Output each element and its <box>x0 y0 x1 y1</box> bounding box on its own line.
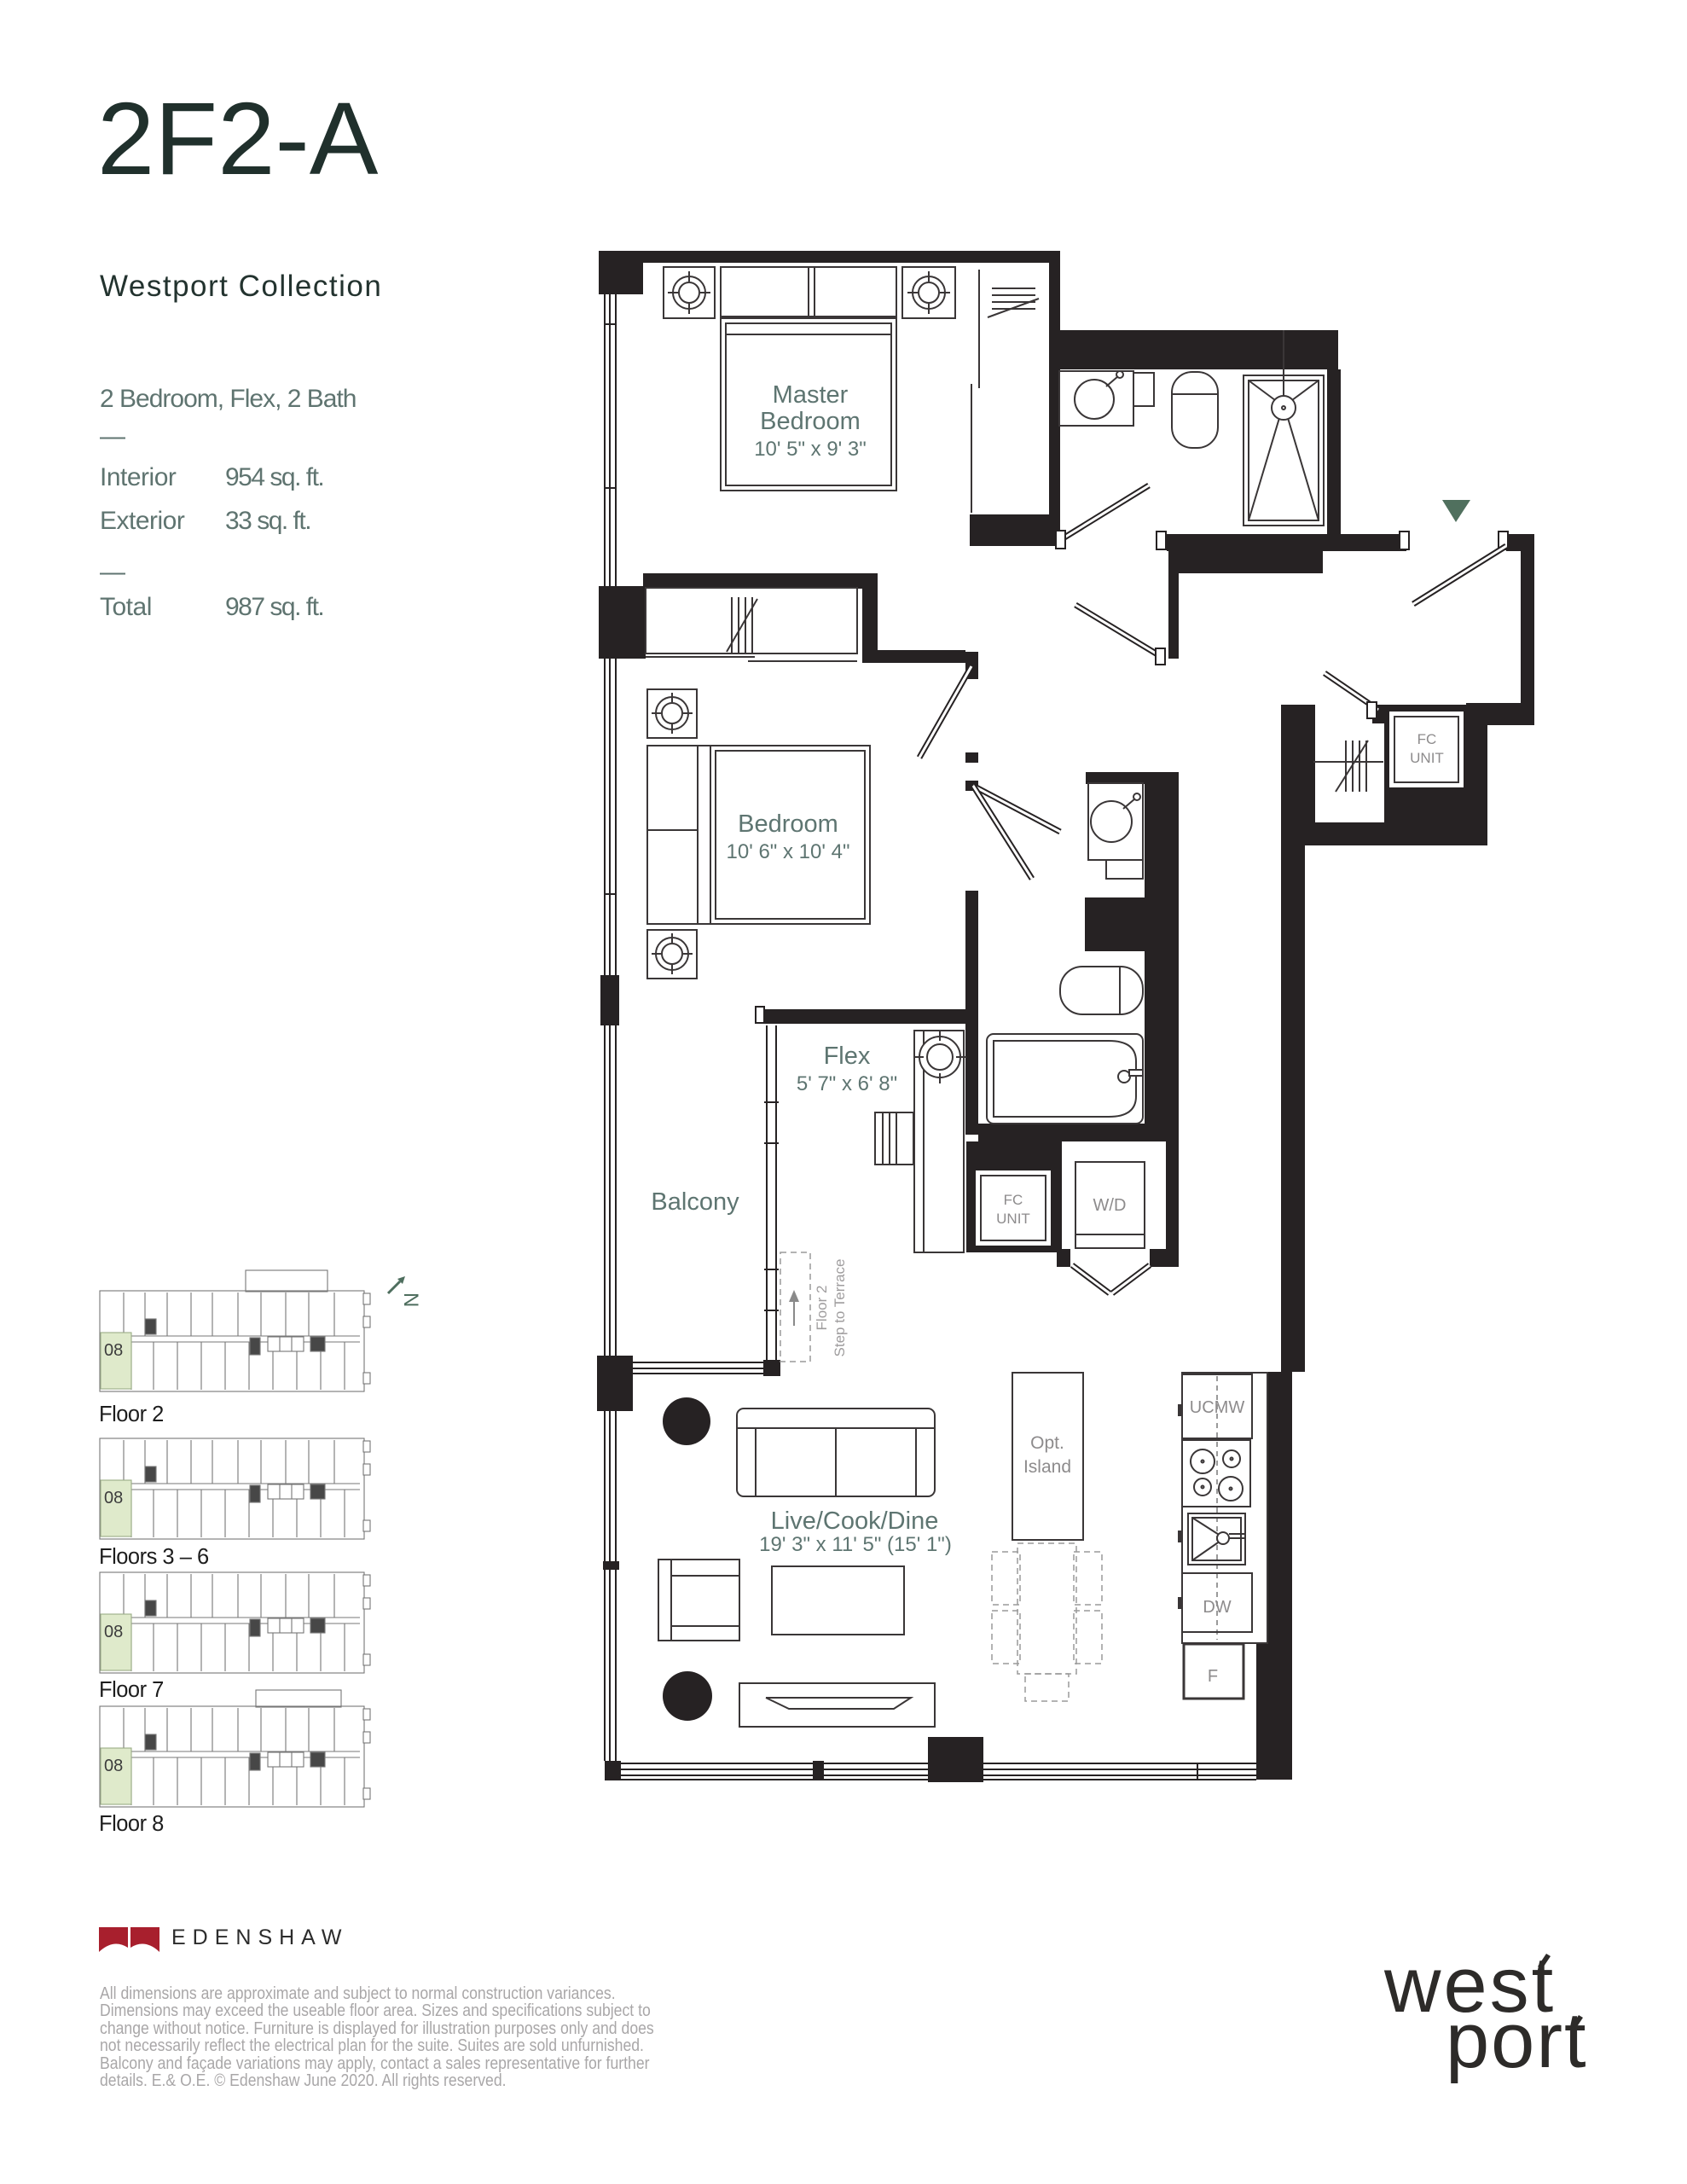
svg-text:EDENSHAW: EDENSHAW <box>171 1926 349 1949</box>
svg-text:UNIT: UNIT <box>996 1211 1030 1227</box>
svg-text:F: F <box>1208 1667 1218 1686</box>
svg-text:Island: Island <box>1023 1457 1071 1477</box>
svg-text:5' 7" x 6' 8": 5' 7" x 6' 8" <box>797 1072 897 1095</box>
svg-text:Step to Terrace: Step to Terrace <box>832 1259 848 1357</box>
svg-text:Master: Master <box>773 381 849 409</box>
svg-text:UNIT: UNIT <box>1410 750 1444 766</box>
svg-text:Live/Cook/Dine: Live/Cook/Dine <box>771 1507 939 1535</box>
svg-text:port: port <box>1446 1997 1588 2084</box>
svg-text:Balcony: Balcony <box>651 1188 739 1216</box>
svg-text:Bedroom: Bedroom <box>738 810 838 838</box>
svg-text:Flex: Flex <box>824 1043 871 1070</box>
svg-text:10' 6" x 10' 4": 10' 6" x 10' 4" <box>727 840 850 863</box>
svg-text:DW: DW <box>1203 1598 1231 1617</box>
svg-text:Floor 7: Floor 7 <box>99 1678 164 1702</box>
svg-text:UCMW: UCMW <box>1190 1398 1245 1417</box>
svg-text:19' 3" x 11' 5" (15' 1"): 19' 3" x 11' 5" (15' 1") <box>759 1533 952 1556</box>
svg-text:Floor 2: Floor 2 <box>814 1286 830 1331</box>
svg-text:Floor 8: Floor 8 <box>99 1812 164 1836</box>
svg-text:Opt.: Opt. <box>1030 1433 1064 1453</box>
svg-text:W/D: W/D <box>1093 1196 1127 1215</box>
svg-text:Bedroom: Bedroom <box>760 408 861 435</box>
svg-text:FC: FC <box>1417 731 1437 747</box>
svg-text:FC: FC <box>1004 1192 1023 1208</box>
svg-text:Floor 2: Floor 2 <box>99 1403 164 1426</box>
svg-text:Floors 3 – 6: Floors 3 – 6 <box>99 1545 209 1569</box>
svg-text:N: N <box>399 1292 422 1307</box>
svg-text:10' 5" x 9' 3": 10' 5" x 9' 3" <box>754 438 867 461</box>
